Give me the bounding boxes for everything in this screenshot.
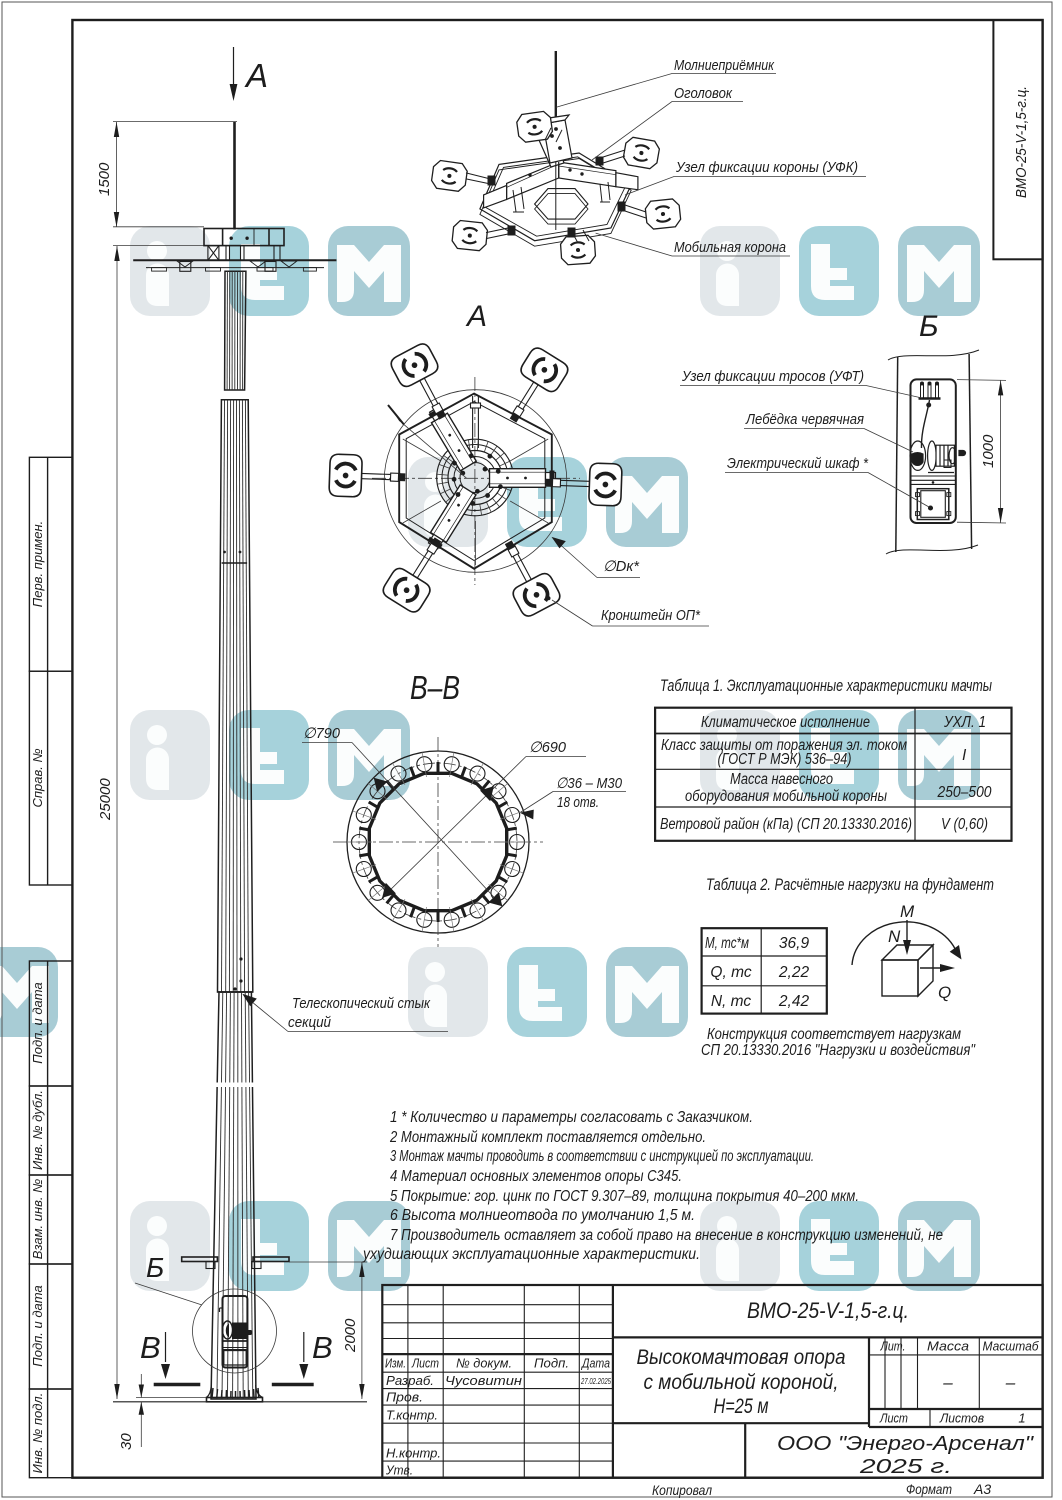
svg-text:Лебёдка червячная: Лебёдка червячная <box>745 411 864 428</box>
svg-text:Подп.: Подп. <box>534 1356 569 1371</box>
svg-text:V (0,60): V (0,60) <box>941 816 988 833</box>
svg-text:Оголовок: Оголовок <box>674 85 733 102</box>
svg-text:–: – <box>1005 1373 1016 1392</box>
svg-text:секций: секций <box>288 1014 332 1031</box>
svg-text:∅790: ∅790 <box>303 725 341 742</box>
svg-text:1500: 1500 <box>96 162 113 196</box>
svg-text:Мобильная корона: Мобильная корона <box>674 239 786 256</box>
svg-text:Т.контр.: Т.контр. <box>386 1408 438 1423</box>
svg-text:В: В <box>140 1330 161 1365</box>
svg-text:с мобильной короной,: с мобильной короной, <box>644 1371 839 1394</box>
svg-text:Разраб.: Разраб. <box>386 1373 434 1388</box>
svg-text:Таблица 1. Эксплуатационные ха: Таблица 1. Эксплуатационные характеристи… <box>660 677 992 695</box>
svg-text:Ветровой район (кПа) (СП 20.13: Ветровой район (кПа) (СП 20.13330.2016) <box>660 816 912 833</box>
svg-text:Масштаб: Масштаб <box>983 1339 1040 1354</box>
svg-text:25000: 25000 <box>97 778 114 821</box>
svg-text:Справ. №: Справ. № <box>30 748 45 807</box>
svg-text:СП 20.13330.2016 "Нагрузки и в: СП 20.13330.2016 "Нагрузки и воздействия… <box>701 1042 976 1059</box>
svg-text:№ докум.: № докум. <box>456 1356 512 1371</box>
svg-text:Формат: Формат <box>906 1481 952 1497</box>
svg-text:Листов: Листов <box>939 1411 984 1426</box>
svg-text:Q, тс: Q, тс <box>710 964 751 981</box>
svg-text:Н.контр.: Н.контр. <box>386 1446 441 1461</box>
svg-text:А3: А3 <box>973 1481 991 1497</box>
svg-text:30: 30 <box>118 1433 135 1450</box>
svg-text:Q: Q <box>938 983 951 1002</box>
svg-text:250–500: 250–500 <box>937 784 992 801</box>
svg-text:–: – <box>942 1373 953 1392</box>
svg-text:Масса: Масса <box>927 1339 969 1354</box>
svg-text:ухудшающих эксплуатационные ха: ухудшающих эксплуатационные характеристи… <box>362 1246 700 1263</box>
svg-text:М, тс*м: М, тс*м <box>705 935 749 952</box>
svg-text:∅690: ∅690 <box>529 739 567 756</box>
svg-text:2025 г.: 2025 г. <box>859 1456 952 1478</box>
svg-text:Перв. примен.: Перв. примен. <box>30 521 45 607</box>
svg-text:∅Dк*: ∅Dк* <box>603 558 640 575</box>
svg-text:N: N <box>888 927 901 946</box>
svg-text:Лист: Лист <box>411 1356 439 1371</box>
svg-text:Таблица 2. Расчётные нагрузки: Таблица 2. Расчётные нагрузки на фундаме… <box>706 876 994 894</box>
svg-text:Б: Б <box>919 310 939 343</box>
svg-text:7 Производитель оставляет за: 7 Производитель оставляет за собой право… <box>390 1227 943 1244</box>
svg-text:Н=25 м: Н=25 м <box>714 1395 769 1418</box>
svg-text:оборудования мобильной короны: оборудования мобильной короны <box>685 788 887 805</box>
svg-text:1: 1 <box>1018 1411 1025 1426</box>
svg-text:Узел фиксации тросов (УФТ): Узел фиксации тросов (УФТ) <box>681 368 864 385</box>
svg-text:5 Покрытие: гор. цинк по ГОСТ: 5 Покрытие: гор. цинк по ГОСТ 9.307–89, … <box>390 1188 859 1205</box>
svg-text:Конструкция соответствует нагр: Конструкция соответствует нагрузкам <box>707 1026 961 1043</box>
svg-text:Кронштейн ОП*: Кронштейн ОП* <box>601 607 701 624</box>
svg-text:ООО "Энерго-Арсенал": ООО "Энерго-Арсенал" <box>777 1433 1034 1455</box>
svg-text:А: А <box>244 57 268 94</box>
svg-text:В–В: В–В <box>410 669 460 706</box>
svg-text:I: I <box>962 747 967 764</box>
svg-text:Б: Б <box>146 1252 164 1283</box>
svg-text:УХЛ. 1: УХЛ. 1 <box>943 714 986 731</box>
svg-text:Копировал: Копировал <box>652 1482 712 1498</box>
svg-text:2,22: 2,22 <box>778 964 810 981</box>
svg-text:Молниеприёмник: Молниеприёмник <box>674 57 775 74</box>
svg-text:Масса навесного: Масса навесного <box>730 771 833 788</box>
svg-text:Узел фиксации короны (УФК): Узел фиксации короны (УФК) <box>675 159 858 176</box>
svg-text:36,9: 36,9 <box>779 935 810 952</box>
svg-text:В: В <box>312 1330 333 1365</box>
svg-text:Телескопический стык: Телескопический стык <box>292 995 431 1012</box>
svg-text:4 Материал основных элементов: 4 Материал основных элементов опоры С345… <box>390 1168 682 1185</box>
svg-text:Утв.: Утв. <box>385 1463 413 1478</box>
svg-text:Дата: Дата <box>580 1356 610 1371</box>
svg-text:ВМО-25-V-1,5-г.ц.: ВМО-25-V-1,5-г.ц. <box>747 1298 909 1323</box>
svg-text:1 * Количество и параметры со: 1 * Количество и параметры согласовать с… <box>390 1109 753 1126</box>
svg-text:(ГОСТ Р МЭК) 536–94): (ГОСТ Р МЭК) 536–94) <box>718 751 852 768</box>
svg-text:∅36 – М30: ∅36 – М30 <box>556 775 623 792</box>
svg-text:2 Монтажный комплект поставля: 2 Монтажный комплект поставляется отдель… <box>389 1129 706 1146</box>
svg-text:Подп. и дата: Подп. и дата <box>30 982 45 1063</box>
svg-text:Климатическое исполнение: Климатическое исполнение <box>701 714 870 731</box>
svg-text:Изм.: Изм. <box>385 1356 406 1371</box>
svg-text:Взам. инв. №: Взам. инв. № <box>30 1179 45 1259</box>
svg-text:18 отв.: 18 отв. <box>557 794 599 811</box>
svg-text:27.02.2025: 27.02.2025 <box>580 1377 611 1386</box>
svg-text:Инв. № дубл.: Инв. № дубл. <box>30 1090 45 1170</box>
svg-text:А: А <box>465 300 487 333</box>
svg-text:Электрический шкаф *: Электрический шкаф * <box>727 455 869 472</box>
svg-text:М: М <box>900 902 915 921</box>
svg-text:N, тс: N, тс <box>711 993 752 1010</box>
svg-text:6 Высота молниеотвода по умол: 6 Высота молниеотвода по умолчанию 1,5 м… <box>390 1207 695 1224</box>
svg-text:3 Монтаж мачты проводить в со: 3 Монтаж мачты проводить в соответствии … <box>390 1148 814 1165</box>
svg-text:Инв. № подл.: Инв. № подл. <box>30 1393 45 1474</box>
svg-text:2,42: 2,42 <box>778 993 810 1010</box>
svg-text:Подп. и дата: Подп. и дата <box>30 1285 45 1366</box>
svg-text:Пров.: Пров. <box>386 1390 423 1405</box>
svg-text:Лист: Лист <box>879 1411 908 1426</box>
svg-text:ВМО-25-V-1,5-г.ц.: ВМО-25-V-1,5-г.ц. <box>1013 86 1030 198</box>
svg-text:2000: 2000 <box>342 1318 359 1353</box>
svg-text:Чусовитин: Чусовитин <box>445 1373 522 1388</box>
svg-text:1000: 1000 <box>980 434 997 468</box>
svg-text:Высокомачтовая опора: Высокомачтовая опора <box>637 1346 846 1369</box>
svg-text:Лит.: Лит. <box>880 1339 906 1354</box>
